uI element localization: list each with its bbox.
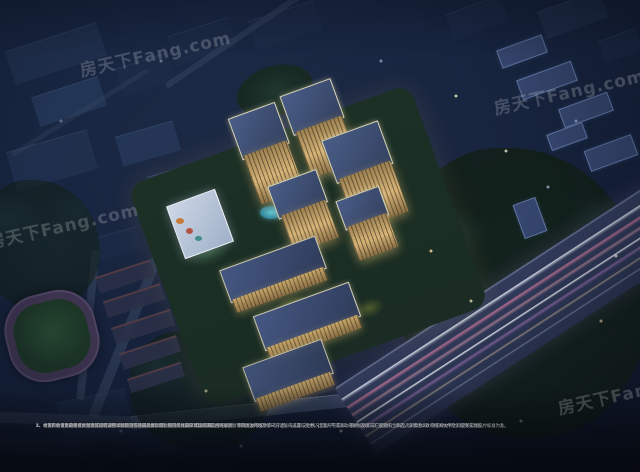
dim-apartment-slab [584, 134, 639, 172]
city-block [445, 0, 509, 40]
playground-feature [176, 218, 184, 224]
city-block [597, 28, 640, 63]
aerial-night-rendering: 房天下Fang.com 房天下Fang.com 房天下Fang.com 房天下F… [0, 0, 640, 472]
soccer-field [8, 293, 97, 379]
playground-feature [195, 236, 202, 241]
city-block [537, 0, 609, 39]
dim-apartment-slab [546, 122, 588, 151]
street-lamp-dots [0, 0, 2, 2]
city-block [94, 226, 143, 260]
disclaimer-line: 5、相关内容请以最终批文为准，如有调整，恕不另行通知。本资料制作时间：2021年… [36, 424, 218, 429]
dim-apartment-slab [496, 34, 548, 68]
playground-feature [186, 228, 193, 234]
city-block [0, 440, 80, 471]
